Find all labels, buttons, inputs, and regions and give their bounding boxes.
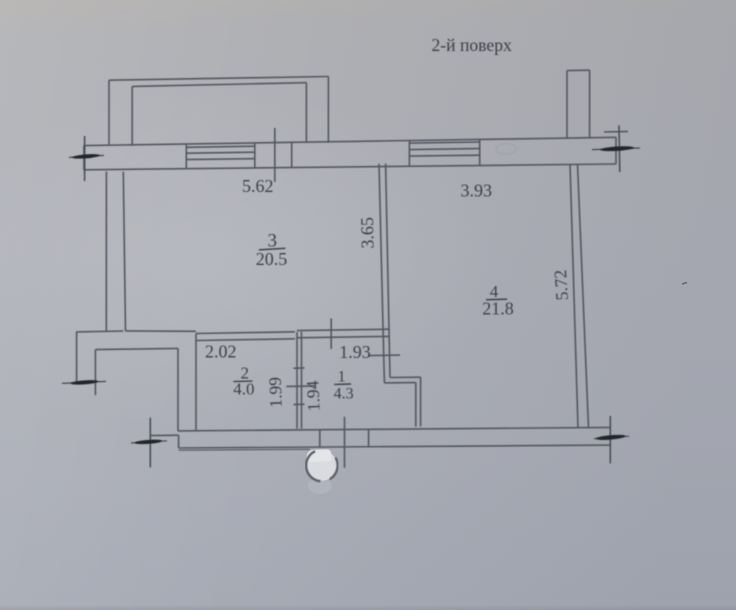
svg-text:4.3: 4.3 bbox=[334, 386, 354, 403]
svg-text:5.72: 5.72 bbox=[550, 269, 572, 301]
svg-text:2.02: 2.02 bbox=[205, 342, 237, 362]
svg-text:4.0: 4.0 bbox=[233, 380, 254, 399]
svg-text:3.93: 3.93 bbox=[461, 181, 493, 201]
svg-text:1: 1 bbox=[338, 369, 346, 386]
svg-text:1.99: 1.99 bbox=[265, 377, 286, 409]
svg-text:5.62: 5.62 bbox=[242, 176, 274, 196]
svg-text:2-й поверх: 2-й поверх bbox=[432, 35, 512, 55]
svg-text:21.8: 21.8 bbox=[482, 299, 514, 319]
svg-text:1.94: 1.94 bbox=[302, 380, 324, 412]
svg-text:20.5: 20.5 bbox=[256, 249, 287, 269]
svg-text:1.93: 1.93 bbox=[339, 342, 371, 362]
svg-text:3.65: 3.65 bbox=[357, 217, 378, 249]
